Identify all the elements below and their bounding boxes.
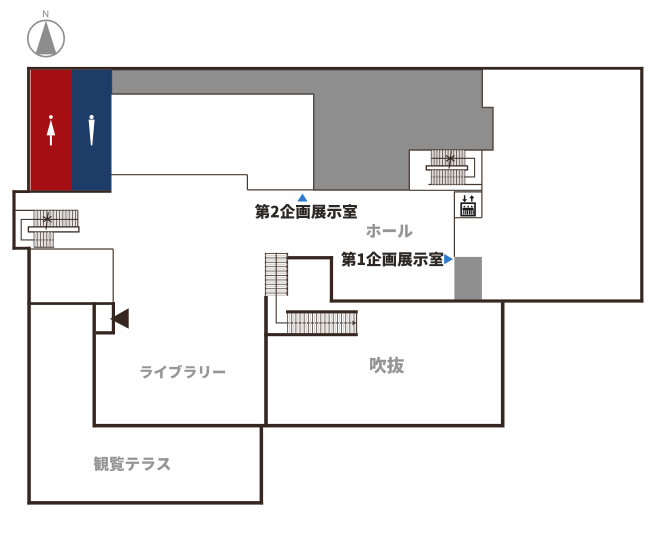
- svg-text:N: N: [42, 8, 49, 19]
